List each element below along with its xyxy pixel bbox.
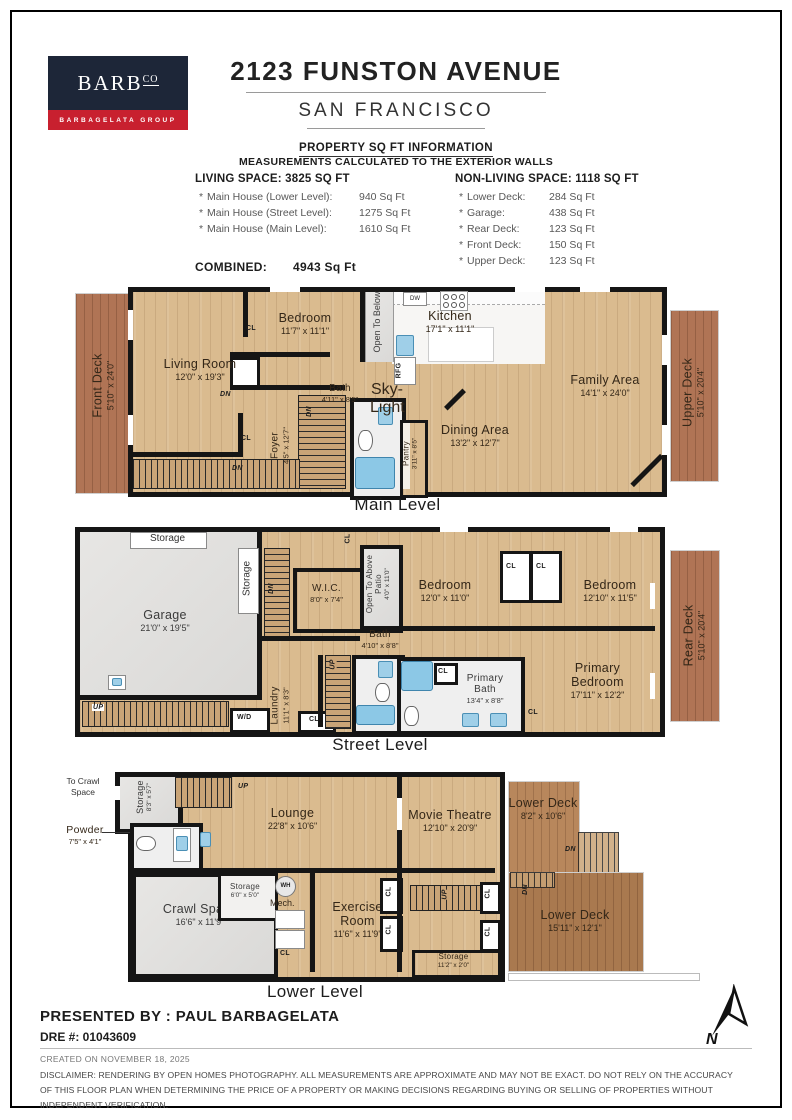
wall	[318, 655, 323, 727]
front-deck-label: Front Deck 5'10" x 24'0"	[91, 301, 116, 471]
up-tag: UP	[442, 889, 449, 899]
footer-divider	[40, 1048, 752, 1049]
lower-deck-lower-label: Lower Deck15'11" x 12'1"	[508, 908, 642, 933]
open-to-below-label: Open To Below	[372, 279, 382, 365]
dishwasher-icon: DW	[403, 292, 427, 306]
sqft-item: *Main House (Main Level):1610 Sq Ft	[195, 221, 450, 237]
sqft-item: *Garage:438 Sq Ft	[455, 205, 675, 221]
main-level-plan: Front Deck 5'10" x 24'0" Upper Deck 5'10…	[70, 285, 730, 517]
title-block: 2123 FUNSTON AVENUE SAN FRANCISCO	[200, 56, 592, 129]
deck-door-opening	[650, 583, 655, 609]
item-name: Upper Deck:	[467, 253, 549, 269]
living-space-heading: LIVING SPACE: 3825 SQ FT	[195, 173, 450, 185]
skylight-label: Sky-Light	[370, 381, 404, 417]
logo-tagline: BARBAGELATA GROUP	[48, 110, 188, 130]
item-value: 284 Sq Ft	[549, 189, 595, 205]
room-label-powder: Powder7'5" x 4'1"	[56, 824, 114, 846]
mech-label: Mech.	[270, 898, 310, 908]
deck-stairs	[510, 872, 555, 888]
wall	[230, 352, 330, 357]
item-value: 438 Sq Ft	[549, 205, 595, 221]
room-label-foyer: Foyer4'5" x 12'7"	[270, 404, 291, 488]
garage-opener-icon	[108, 675, 126, 690]
bullet: *	[195, 205, 207, 221]
room-label-primary-bedroom: Primary Bedroom17'11" x 12'2"	[550, 661, 645, 700]
closet-tag: CL	[344, 534, 351, 544]
room-label-living-room: Living Room12'0" x 19'3"	[155, 357, 245, 382]
up-tag: UP	[238, 783, 248, 790]
deck-door-opening	[662, 425, 667, 455]
wall	[360, 292, 365, 362]
street-level-plan: Rear Deck 5'10" x 20'4" Storage Storage …	[70, 523, 730, 758]
north-compass-icon: N	[700, 984, 752, 1046]
item-name: Lower Deck:	[467, 189, 549, 205]
room-label-family-area: Family Area14'1" x 24'0"	[560, 373, 650, 398]
storage-annex-label: Storage8'3" x 5'7"	[135, 769, 153, 825]
disclaimer-text: DISCLAIMER: RENDERING BY OPEN HOMES PHOT…	[40, 1068, 738, 1113]
shower-icon	[401, 661, 433, 691]
bath-sink-icon	[378, 661, 393, 678]
window-opening	[128, 310, 133, 340]
rear-deck-label: Rear Deck 5'10" x 20'4"	[682, 551, 707, 721]
closet-tag: CL	[506, 563, 516, 570]
storage-label: Storage	[242, 549, 253, 609]
bullet: *	[195, 189, 207, 205]
item-value: 123 Sq Ft	[549, 253, 595, 269]
closet-tag: CL	[484, 889, 491, 899]
room-label-movie-theatre: Movie Theatre12'10" x 20'9"	[405, 808, 495, 833]
closet-tag: CL	[246, 325, 256, 332]
wall	[79, 695, 262, 700]
nonliving-space-heading: NON-LIVING SPACE: 1118 SQ FT	[455, 173, 675, 185]
patio-label: Open To Above Patio4'0" x 11'0"	[365, 544, 391, 624]
mech-equipment	[275, 910, 305, 929]
item-name: Front Deck:	[467, 237, 549, 253]
combined-label: COMBINED:	[195, 260, 267, 274]
closet-tag: CL	[528, 709, 538, 716]
room-label-primary-bath: Primary Bath13'4" x 8'8"	[455, 673, 515, 705]
item-name: Main House (Lower Level):	[207, 189, 359, 205]
window-opening	[440, 527, 468, 532]
lower-deck-upper-label: Lower Deck8'2" x 10'6"	[508, 796, 578, 821]
lower-level-plan: Lower Deck8'2" x 10'6" DN DN Lower Deck1…	[60, 770, 760, 1010]
created-date: CREATED ON NOVEMBER 18, 2025	[40, 1054, 190, 1064]
room-label-lounge: Lounge22'8" x 10'6"	[245, 806, 340, 831]
down-tag: DN	[565, 846, 576, 853]
sink-icon	[490, 713, 507, 727]
bullet: *	[455, 221, 467, 237]
sqft-heading: PROPERTY SQ FT INFORMATION	[0, 138, 792, 156]
sink-icon	[176, 836, 188, 851]
tub-icon	[356, 705, 395, 725]
room-label-dining-area: Dining Area13'2" x 12'7"	[430, 423, 520, 448]
toilet-icon	[375, 683, 390, 702]
sqft-item: *Rear Deck:123 Sq Ft	[455, 221, 675, 237]
storage-room-label: Storage6'0" x 5'0"	[220, 882, 270, 899]
presented-by: PRESENTED BY : PAUL BARBAGELATA	[40, 1008, 339, 1025]
logo-navy-box: BARBCO	[48, 56, 188, 110]
up-tag: UP	[330, 659, 337, 669]
retaining-wall	[508, 973, 700, 981]
window-opening	[270, 287, 300, 292]
closet-tag: CL	[438, 668, 448, 675]
to-crawl-space-label: To Crawl Space	[60, 776, 106, 798]
main-level-caption: Main Level	[128, 495, 667, 515]
item-value: 150 Sq Ft	[549, 237, 595, 253]
down-tag: DN	[232, 465, 243, 472]
dre-number: DRE #: 01043609	[40, 1030, 136, 1044]
wall	[238, 413, 243, 453]
closet	[500, 551, 532, 603]
toilet-icon	[404, 706, 419, 726]
kitchen-sink-icon	[396, 335, 414, 356]
down-tag: DN	[306, 406, 313, 417]
living-space-column: LIVING SPACE: 3825 SQ FT *Main House (Lo…	[195, 173, 450, 237]
wall	[128, 452, 243, 457]
crawl-access-opening	[115, 786, 120, 800]
stove-icon	[440, 291, 468, 311]
room-label-kitchen: Kitchen17'1" x 11'1"	[405, 309, 495, 334]
fridge-tag: RFG	[395, 363, 402, 379]
down-tag: DN	[268, 583, 275, 594]
nonliving-space-column: NON-LIVING SPACE: 1118 SQ FT *Lower Deck…	[455, 173, 675, 269]
bullet: *	[455, 253, 467, 269]
mech-equipment	[275, 930, 305, 949]
item-name: Rear Deck:	[467, 221, 549, 237]
bullet: *	[195, 221, 207, 237]
room-label-garage: Garage21'0" x 19'5"	[120, 608, 210, 633]
room-label-pantry: Pantry3'11" x 8'5"	[402, 415, 419, 493]
bullet: *	[455, 205, 467, 221]
water-heater-icon: WH	[275, 876, 296, 897]
room-label-bedroom: Bedroom11'7" x 11'1"	[260, 311, 350, 336]
closet-tag: CL	[280, 950, 290, 957]
label-leader-line	[102, 832, 130, 833]
stairs	[175, 777, 232, 808]
toilet-icon	[136, 836, 156, 851]
room-label-wic: W.I.C.8'0" x 7'4"	[295, 583, 358, 604]
lower-level-caption: Lower Level	[105, 982, 525, 1002]
closet-tag: CL	[385, 887, 392, 897]
combined-row: COMBINED:4943 Sq Ft	[195, 260, 382, 274]
logo-text: BARB	[77, 71, 142, 95]
combined-value: 4943 Sq Ft	[293, 260, 356, 274]
bullet: *	[455, 189, 467, 205]
closet	[530, 551, 562, 603]
upper-deck-label: Upper Deck 5'10" x 20'4"	[681, 308, 706, 478]
item-value: 940 Sq Ft	[359, 189, 405, 205]
sink-icon	[462, 713, 479, 727]
closet-tag: CL	[385, 925, 392, 935]
item-value: 123 Sq Ft	[549, 221, 595, 237]
page-title: 2123 FUNSTON AVENUE	[200, 56, 592, 87]
room-label-bedroom-2: Bedroom12'10" x 11'5"	[565, 578, 655, 603]
up-tag: UP	[92, 704, 104, 711]
deck-stairs	[578, 832, 619, 874]
logo-wordmark: BARBCO	[77, 71, 158, 96]
deck-door-opening	[662, 335, 667, 365]
closet-tag: CL	[241, 435, 251, 442]
sqft-item: *Lower Deck:284 Sq Ft	[455, 189, 675, 205]
shower-icon	[355, 457, 395, 489]
sqft-subheading: MEASUREMENTS CALCULATED TO THE EXTERIOR …	[0, 156, 792, 168]
item-value: 1610 Sq Ft	[359, 221, 410, 237]
title-underline	[246, 92, 546, 93]
door-opening	[397, 798, 402, 830]
compass-n-label: N	[706, 1031, 718, 1046]
window-opening	[580, 287, 610, 292]
washer-dryer-tag: W/D	[237, 714, 252, 721]
item-name: Main House (Main Level):	[207, 221, 359, 237]
sqft-item: *Upper Deck:123 Sq Ft	[455, 253, 675, 269]
subtitle-underline	[307, 128, 485, 129]
room-label-bath: Bath4'11" x 8'5"	[305, 383, 375, 404]
room-label-bedroom-1: Bedroom12'0" x 11'0"	[400, 578, 490, 603]
closet-tag: CL	[484, 927, 491, 937]
window-opening	[128, 415, 133, 445]
logo-superscript: CO	[143, 74, 159, 86]
closet-tag: CL	[536, 563, 546, 570]
toilet-icon	[358, 430, 373, 451]
sqft-item: *Main House (Street Level):1275 Sq Ft	[195, 205, 450, 221]
flyer-page: BARBCO BARBAGELATA GROUP 2123 FUNSTON AV…	[0, 0, 792, 1120]
sqft-item: *Front Deck:150 Sq Ft	[455, 237, 675, 253]
storage-strip-label: Storage11'2" x 2'0"	[414, 952, 493, 969]
lower-deck-upper	[508, 781, 580, 874]
bar-sink-icon	[200, 832, 211, 847]
item-name: Main House (Street Level):	[207, 205, 359, 221]
street-level-caption: Street Level	[75, 735, 685, 755]
storage-label: Storage	[130, 533, 205, 544]
item-value: 1275 Sq Ft	[359, 205, 410, 221]
deck-door-opening	[650, 673, 655, 699]
window-opening	[610, 527, 638, 532]
down-tag: DN	[220, 391, 231, 398]
page-subtitle: SAN FRANCISCO	[200, 100, 592, 122]
bullet: *	[455, 237, 467, 253]
item-name: Garage:	[467, 205, 549, 221]
window-opening	[515, 287, 545, 292]
brokerage-logo: BARBCO BARBAGELATA GROUP	[48, 56, 188, 130]
sqft-item: *Main House (Lower Level):940 Sq Ft	[195, 189, 450, 205]
room-label-bath: Bath4'10" x 8'8"	[345, 629, 415, 650]
down-tag: DN	[522, 884, 529, 895]
